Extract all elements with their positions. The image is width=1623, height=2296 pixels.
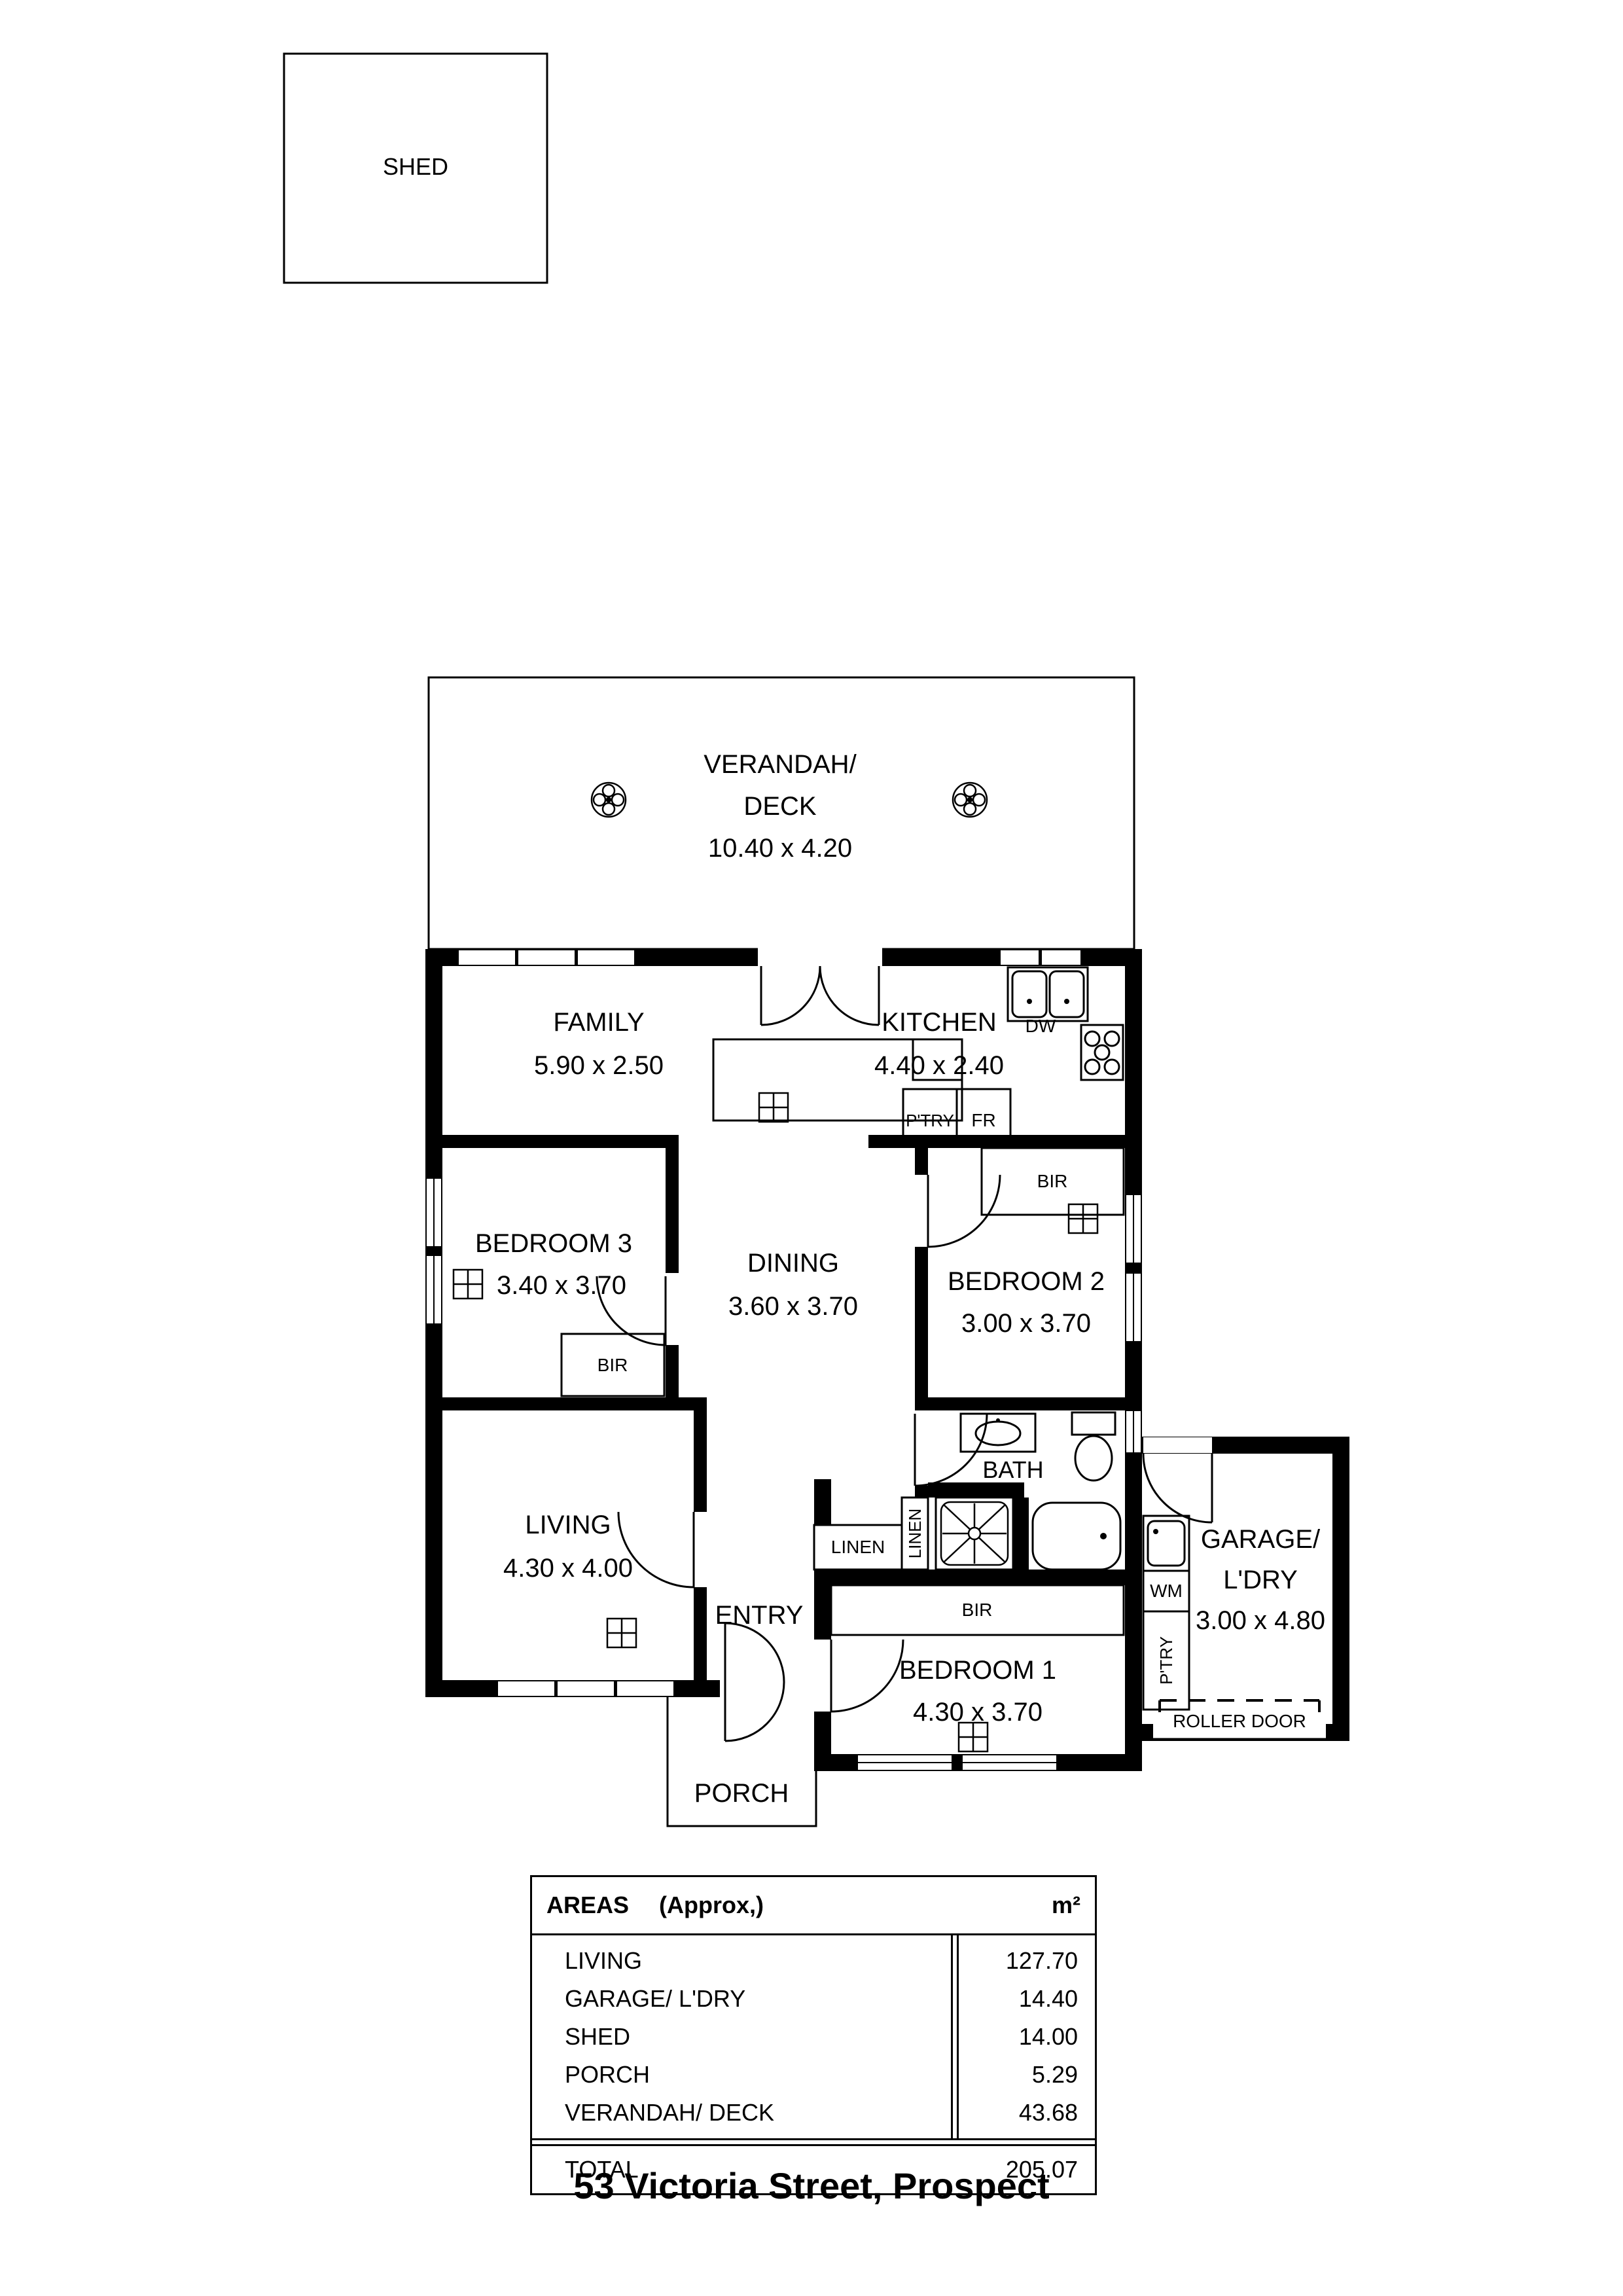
verandah-label-2: DECK xyxy=(743,793,816,819)
kitchen-sink-icon xyxy=(1008,967,1088,1021)
toilet-icon xyxy=(1072,1412,1115,1480)
table-row: VERANDAH/ DECK 43.68 xyxy=(532,2094,1095,2132)
table-row: LIVING 127.70 xyxy=(532,1942,1095,1980)
pantry-label-kitchen: P'TRY xyxy=(906,1112,954,1129)
bedroom2-dims: 3.00 x 3.70 xyxy=(961,1310,1091,1336)
area-row-value: 14.00 xyxy=(950,2023,1095,2051)
wm-label: WM xyxy=(1150,1582,1183,1600)
basin-icon xyxy=(961,1414,1035,1452)
area-row-value: 5.29 xyxy=(950,2061,1095,2089)
family-room-label: FAMILY xyxy=(553,1009,644,1035)
shower-icon xyxy=(936,1498,1013,1570)
family-room-dims: 5.90 x 2.50 xyxy=(534,1052,664,1079)
areas-header-title: AREAS xyxy=(546,1892,629,1919)
area-row-value: 127.70 xyxy=(950,1947,1095,1975)
kitchen-dims: 4.40 x 2.40 xyxy=(874,1052,1004,1079)
bathtub-icon xyxy=(1033,1503,1120,1570)
robe-boxes xyxy=(562,1148,1124,1635)
garage-door-opening xyxy=(1143,1437,1212,1453)
verandah-label: VERANDAH/ xyxy=(704,751,856,778)
area-row-label: SHED xyxy=(532,2023,950,2051)
area-row-value: 43.68 xyxy=(950,2099,1095,2126)
areas-table-total-separator xyxy=(532,2138,1095,2146)
table-row: PORCH 5.29 xyxy=(532,2056,1095,2094)
floorplan-page: SHED VERANDAH/ DECK 10.40 x 4.20 FAMILY … xyxy=(0,0,1623,2296)
exterior-walls xyxy=(425,949,1142,1771)
dining-dims: 3.60 x 3.70 xyxy=(728,1293,858,1319)
garage-label: GARAGE/ xyxy=(1201,1526,1320,1552)
area-row-value: 14.40 xyxy=(950,1985,1095,2013)
kitchen-label: KITCHEN xyxy=(882,1009,997,1035)
verandah-dims: 10.40 x 4.20 xyxy=(708,835,852,861)
areas-table-divider xyxy=(951,1935,959,2138)
linen-label-vertical: LINEN xyxy=(906,1509,923,1559)
areas-header-approx: (Approx,) xyxy=(659,1892,764,1919)
dining-label: DINING xyxy=(747,1250,839,1276)
porch-label: PORCH xyxy=(694,1780,789,1806)
ceiling-fan-icon xyxy=(592,783,626,817)
garage-label-2: L'DRY xyxy=(1223,1567,1298,1593)
roller-door-label: ROLLER DOOR xyxy=(1173,1712,1306,1731)
bir-label-bed1: BIR xyxy=(962,1601,993,1619)
living-label: LIVING xyxy=(525,1512,611,1538)
areas-table-header: AREAS (Approx,) m² xyxy=(532,1877,1095,1935)
garage-dims: 3.00 x 4.80 xyxy=(1196,1607,1325,1634)
areas-header-unit: m² xyxy=(1052,1892,1080,1919)
bir-label-bed2: BIR xyxy=(1037,1172,1068,1191)
fridge-label: FR xyxy=(971,1111,995,1130)
area-row-label: VERANDAH/ DECK xyxy=(532,2099,950,2126)
door-arcs xyxy=(597,966,1212,1741)
bedroom3-dims: 3.40 x 3.70 xyxy=(497,1272,626,1299)
french-door-opening xyxy=(758,948,882,967)
areas-table-body: LIVING 127.70 GARAGE/ L'DRY 14.40 SHED 1… xyxy=(532,1935,1095,2138)
bir-label-bed3: BIR xyxy=(597,1356,628,1374)
entry-label: ENTRY xyxy=(715,1602,804,1628)
ceiling-fan-icon xyxy=(953,783,987,817)
cooktop-icon xyxy=(1081,1025,1123,1080)
table-row: SHED 14.00 xyxy=(532,2018,1095,2056)
shed-label: SHED xyxy=(383,155,448,179)
page-title: 53 Victoria Street, Prospect xyxy=(573,2168,1049,2204)
linen-label-horizontal: LINEN xyxy=(831,1538,885,1556)
bedroom1-dims: 4.30 x 3.70 xyxy=(913,1699,1043,1725)
laundry-trough-icon xyxy=(1143,1516,1189,1571)
area-row-label: PORCH xyxy=(532,2061,950,2089)
table-row: GARAGE/ L'DRY 14.40 xyxy=(532,1980,1095,2018)
area-row-label: GARAGE/ L'DRY xyxy=(532,1985,950,2013)
pantry-label-garage: P'TRY xyxy=(1158,1636,1175,1685)
window-glyphs xyxy=(426,950,1141,1770)
living-dims: 4.30 x 4.00 xyxy=(503,1555,633,1581)
area-row-label: LIVING xyxy=(532,1947,950,1975)
bedroom1-label: BEDROOM 1 xyxy=(899,1657,1056,1683)
dishwasher-label: DW xyxy=(1026,1017,1056,1035)
bedroom3-label: BEDROOM 3 xyxy=(475,1230,632,1257)
areas-table: AREAS (Approx,) m² LIVING 127.70 GARAGE/… xyxy=(530,1875,1097,2195)
bedroom2-label: BEDROOM 2 xyxy=(948,1268,1105,1295)
bath-label: BATH xyxy=(982,1458,1043,1482)
